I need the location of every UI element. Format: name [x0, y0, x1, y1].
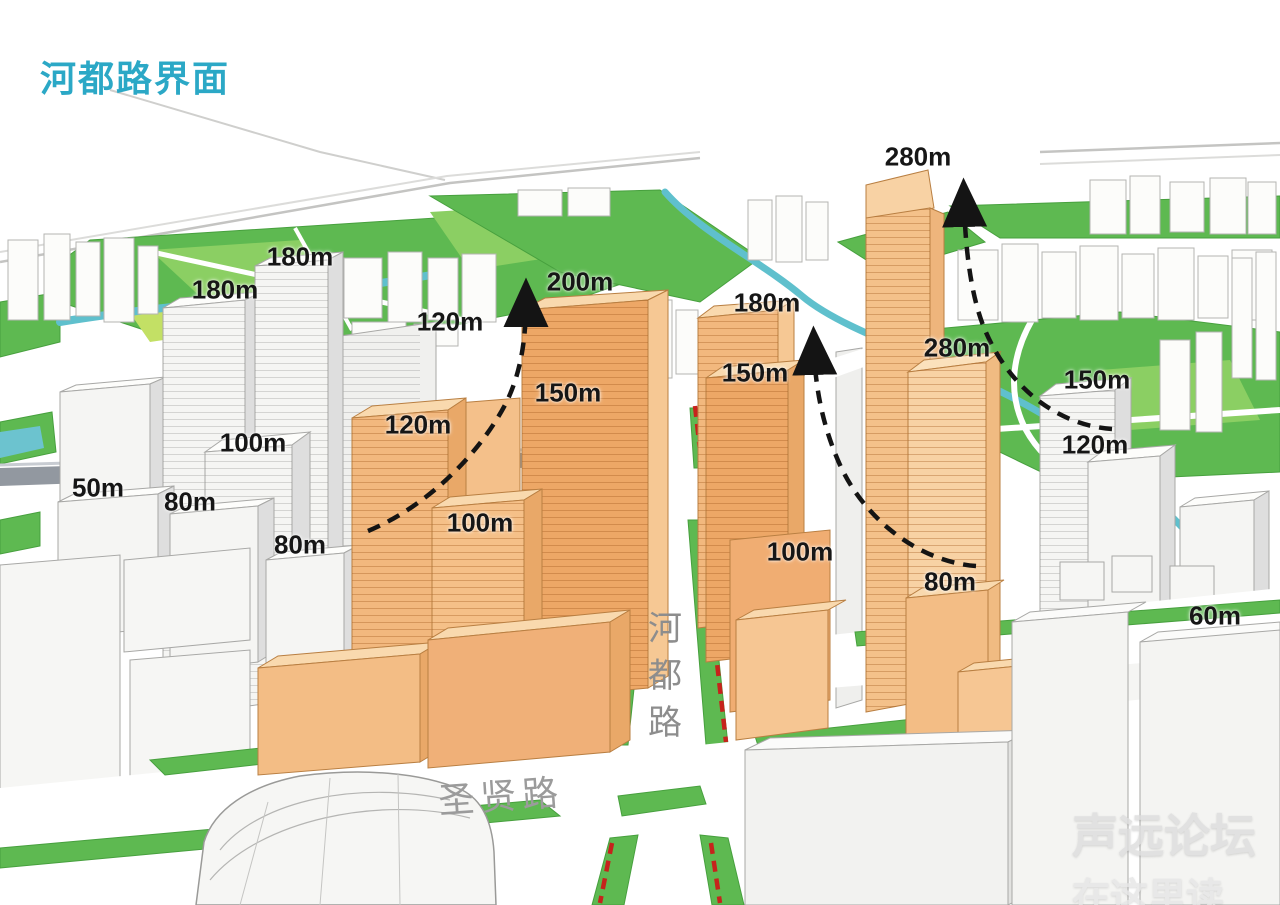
height-label: 280m: [885, 142, 952, 173]
road-label-char: 河: [648, 606, 682, 653]
watermark: 声远论坛 在这里读: [1072, 800, 1256, 905]
height-label: 180m: [734, 288, 801, 319]
page-title: 河都路界面: [40, 50, 230, 102]
height-label: 80m: [924, 567, 976, 598]
height-label: 150m: [535, 378, 602, 409]
height-label: 180m: [267, 242, 334, 273]
height-label: 150m: [722, 358, 789, 389]
road-label-char: 都: [648, 653, 682, 700]
height-label: 80m: [164, 487, 216, 518]
height-label: 120m: [385, 410, 452, 441]
height-label: 120m: [1062, 430, 1129, 461]
height-label: 180m: [192, 275, 259, 306]
height-label: 100m: [220, 428, 287, 459]
height-label: 60m: [1189, 601, 1241, 632]
height-label: 150m: [1064, 365, 1131, 396]
height-label: 80m: [274, 530, 326, 561]
height-label: 280m: [924, 333, 991, 364]
height-label: 200m: [547, 267, 614, 298]
watermark-line1: 声远论坛: [1072, 800, 1256, 866]
height-label: 120m: [417, 307, 484, 338]
road-label-char: 路: [648, 700, 682, 747]
height-label: 100m: [447, 508, 514, 539]
height-label: 50m: [72, 473, 124, 504]
watermark-line2: 在这里读: [1072, 866, 1256, 905]
road-label-hedu: 河 都 路: [648, 606, 682, 747]
height-label: 100m: [767, 537, 834, 568]
urban-design-diagram: 河都路界面 180m180m120m200m150m120m100m50m80m…: [0, 0, 1280, 905]
road-label-shengxian: 圣贤路: [436, 764, 565, 825]
